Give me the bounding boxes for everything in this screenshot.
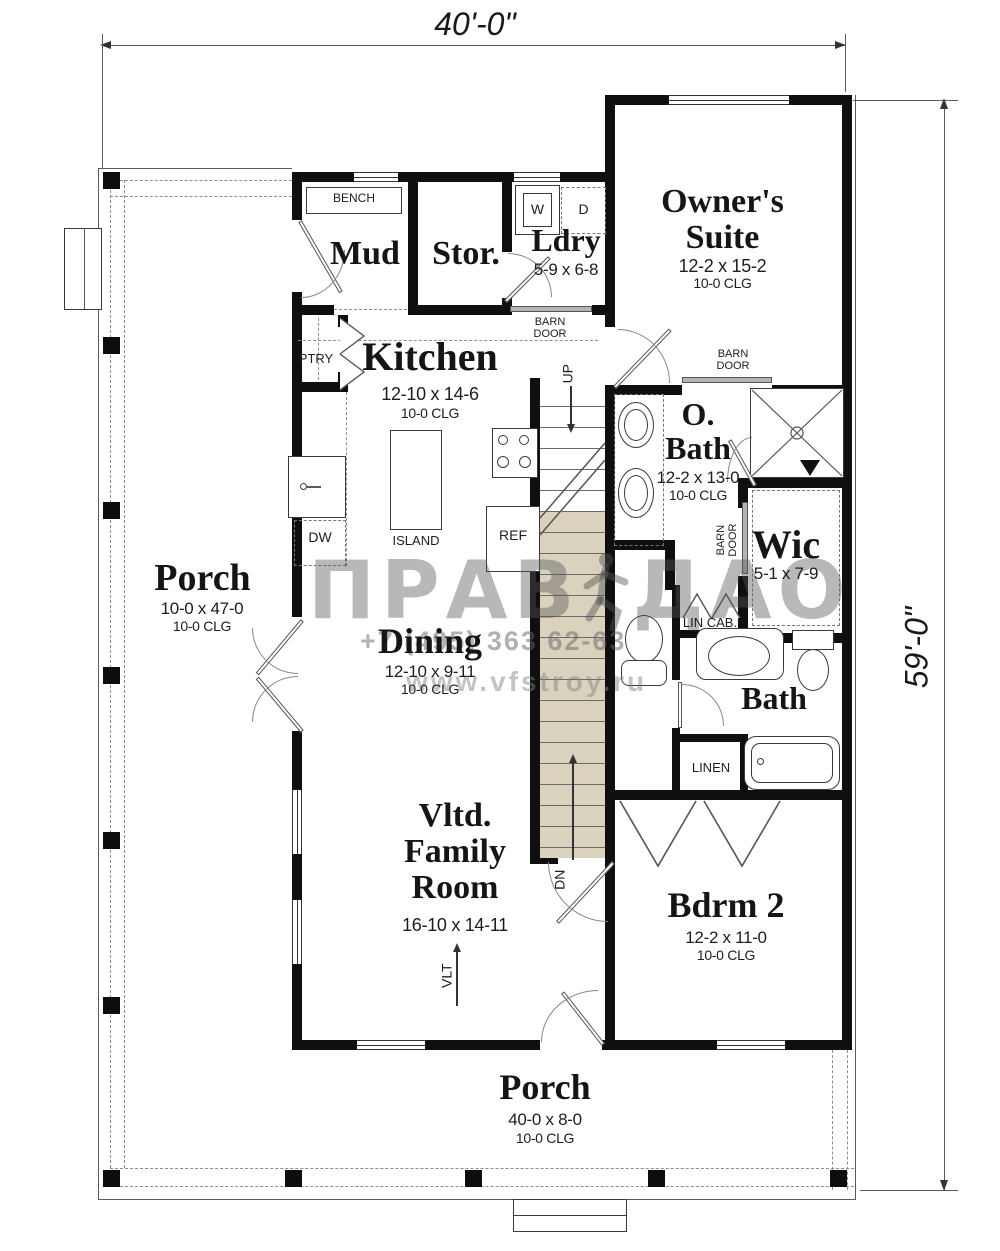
dn-label: DN [552,866,567,894]
room-size-owners: 12-2 x 15-2 [650,256,795,277]
ref-label: REF [486,528,540,543]
up-label: UP [560,360,575,388]
vlt-arrow-line [456,950,458,1006]
room-size-kitchen: 12-10 x 14-6 [330,384,530,405]
island-label: ISLAND [388,534,444,548]
floor-plan: 40'-0" 59'-0" [0,0,1000,1251]
washer-label: W [515,202,560,217]
vlt-arrow-head-icon [453,943,461,952]
dw-label: DW [296,530,344,545]
room-clg-kitchen: 10-0 CLG [330,405,530,421]
room-label-kitchen: Kitchen [330,336,530,378]
room-size-porch-left: 10-0 x 47-0 [146,599,258,619]
room-label-obath: O.Bath [648,398,748,466]
room-size-wic: 5-1 x 7-9 [736,564,836,584]
room-size-bdrm2: 12-2 x 11-0 [650,928,802,948]
room-clg-owners: 10-0 CLG [650,275,795,291]
room-size-obath: 12-2 x 13-0 [640,468,756,488]
room-size-ldry: 5-9 x 6-8 [518,260,614,280]
right-dimension-label: 59'-0" [899,589,936,707]
room-size-dining: 12-10 x 9-11 [358,662,502,682]
room-label-family: Vltd.FamilyRoom [385,798,525,906]
vlt-label: VLT [439,961,454,991]
room-label-owners-suite: Owner'sSuite [650,184,795,256]
room-size-porch-bottom: 40-0 x 8-0 [470,1110,620,1130]
room-clg-dining: 10-0 CLG [358,681,502,697]
room-clg-porch-bottom: 10-0 CLG [470,1130,620,1146]
room-label-bath: Bath [734,682,814,716]
watermark-figure-icon [580,550,632,632]
room-label-ldry: Ldry [522,224,610,258]
lin-cab-label: LIN CAB. [674,616,746,630]
room-clg-porch-left: 10-0 CLG [146,618,258,634]
dryer-label: D [561,202,606,217]
room-label-stor: Stor. [420,236,512,272]
barn-door-label: BARNDOOR [704,348,762,372]
room-label-dining: Dining [360,622,500,660]
room-label-porch-bottom: Porch [470,1068,620,1106]
top-dimension-label: 40'-0" [395,6,555,43]
room-label-wic: Wic [736,524,836,566]
room-label-bdrm2: Bdrm 2 [650,886,802,924]
barn-door-label: BARNDOOR [522,316,578,340]
room-label-porch-left: Porch [150,558,255,598]
room-clg-bdrm2: 10-0 CLG [650,947,802,963]
linen-label: LINEN [678,761,744,775]
room-label-mud: Mud [310,236,420,272]
room-size-family: 16-10 x 14-11 [380,915,530,936]
bench-label: BENCH [306,192,402,205]
room-clg-obath: 10-0 CLG [640,487,756,503]
